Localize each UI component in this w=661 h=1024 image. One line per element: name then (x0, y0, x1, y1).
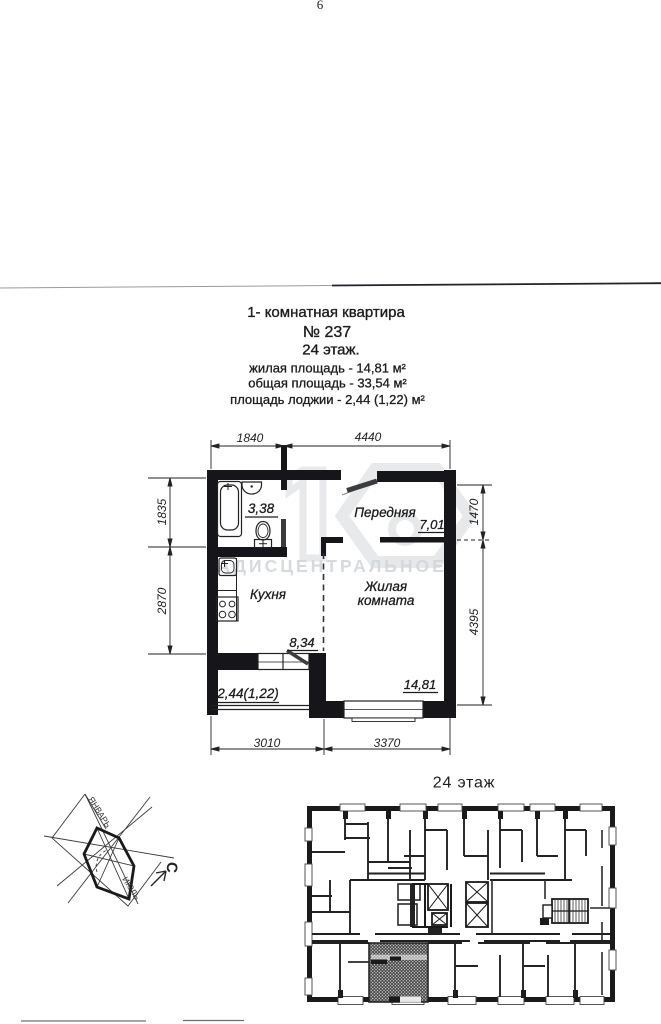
svg-text:4395: 4395 (467, 608, 481, 635)
svg-text:комната: комната (358, 593, 415, 608)
svg-text:1470: 1470 (467, 498, 481, 525)
svg-text:общая площадь - 33,54 м²: общая площадь - 33,54 м² (248, 376, 407, 391)
svg-text:14,81: 14,81 (404, 677, 437, 692)
svg-text:3010: 3010 (254, 736, 281, 750)
svg-text:24 этаж: 24 этаж (433, 775, 495, 792)
svg-text:3370: 3370 (374, 736, 401, 750)
svg-text:площадь лоджии - 2,44 (1,22) м: площадь лоджии - 2,44 (1,22) м² (230, 392, 425, 407)
svg-text:4440: 4440 (355, 430, 382, 444)
svg-text:жилая площадь - 14,81 м²: жилая площадь - 14,81 м² (249, 361, 406, 376)
svg-text:3,38: 3,38 (248, 501, 275, 516)
svg-text:Жилая: Жилая (364, 579, 407, 594)
svg-text:24 этаж.: 24 этаж. (302, 342, 359, 359)
svg-text:Передняя: Передняя (354, 505, 415, 520)
svg-text:2,44(1,22): 2,44(1,22) (216, 686, 279, 701)
svg-text:1835: 1835 (155, 498, 169, 525)
svg-text:1840: 1840 (237, 431, 264, 445)
svg-text:2870: 2870 (155, 587, 169, 615)
svg-text:1- комнатная квартира: 1- комнатная квартира (247, 304, 405, 321)
svg-text:№ 237: № 237 (303, 324, 351, 341)
svg-text:7,01: 7,01 (419, 517, 444, 532)
svg-text:Кухня: Кухня (250, 587, 286, 602)
svg-text:6: 6 (317, 0, 324, 12)
svg-text:8,34: 8,34 (289, 635, 314, 650)
svg-text:АДИСЦЕНТРАЛЬНОЕ: АДИСЦЕНТРАЛЬНОЕ (217, 556, 447, 576)
